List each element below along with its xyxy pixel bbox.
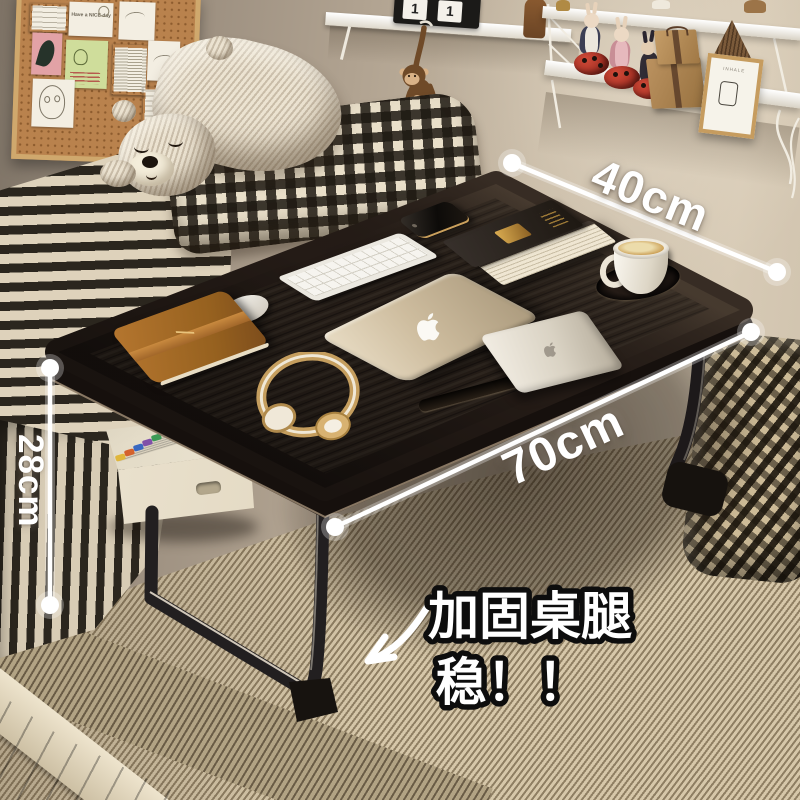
product-photo-laptop-bed-table: Have a NICE day 1 1 bbox=[0, 0, 800, 800]
caption-line1: 加固桌腿 bbox=[428, 588, 632, 645]
height-label: 28cm bbox=[10, 434, 50, 526]
arrow-down-left-icon bbox=[368, 596, 434, 661]
caption-line2: 稳！！ bbox=[435, 654, 588, 711]
annotation-overlay: 加固桌腿 稳！！ bbox=[0, 0, 800, 800]
